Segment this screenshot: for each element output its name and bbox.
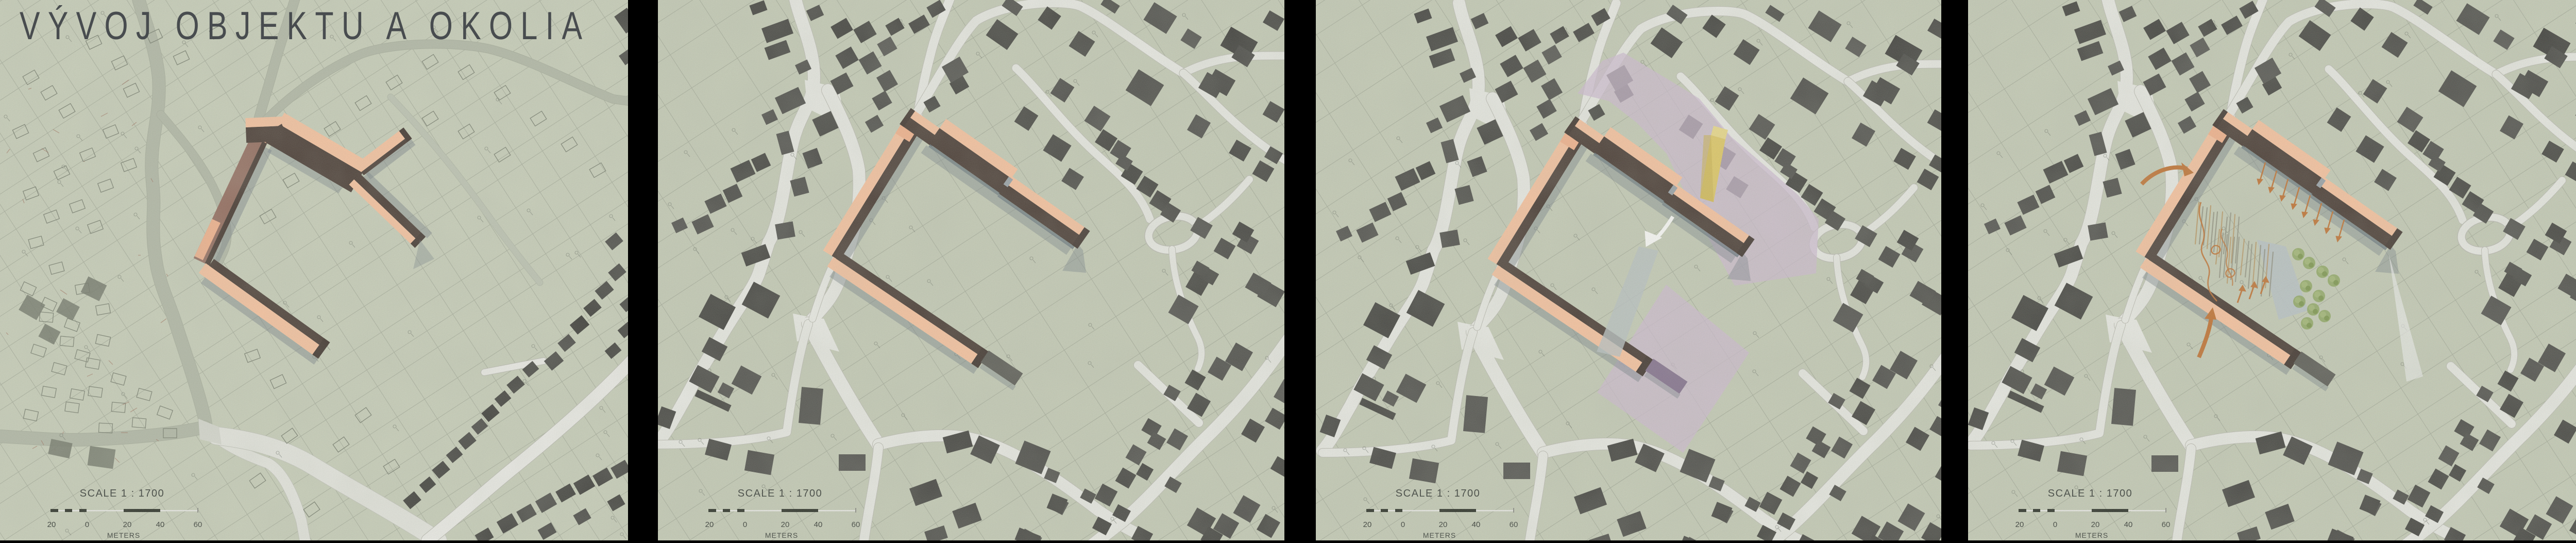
svg-text:VÝVOJ OBJEKTU A OKOLIA: VÝVOJ OBJEKTU A OKOLIA	[20, 4, 582, 48]
